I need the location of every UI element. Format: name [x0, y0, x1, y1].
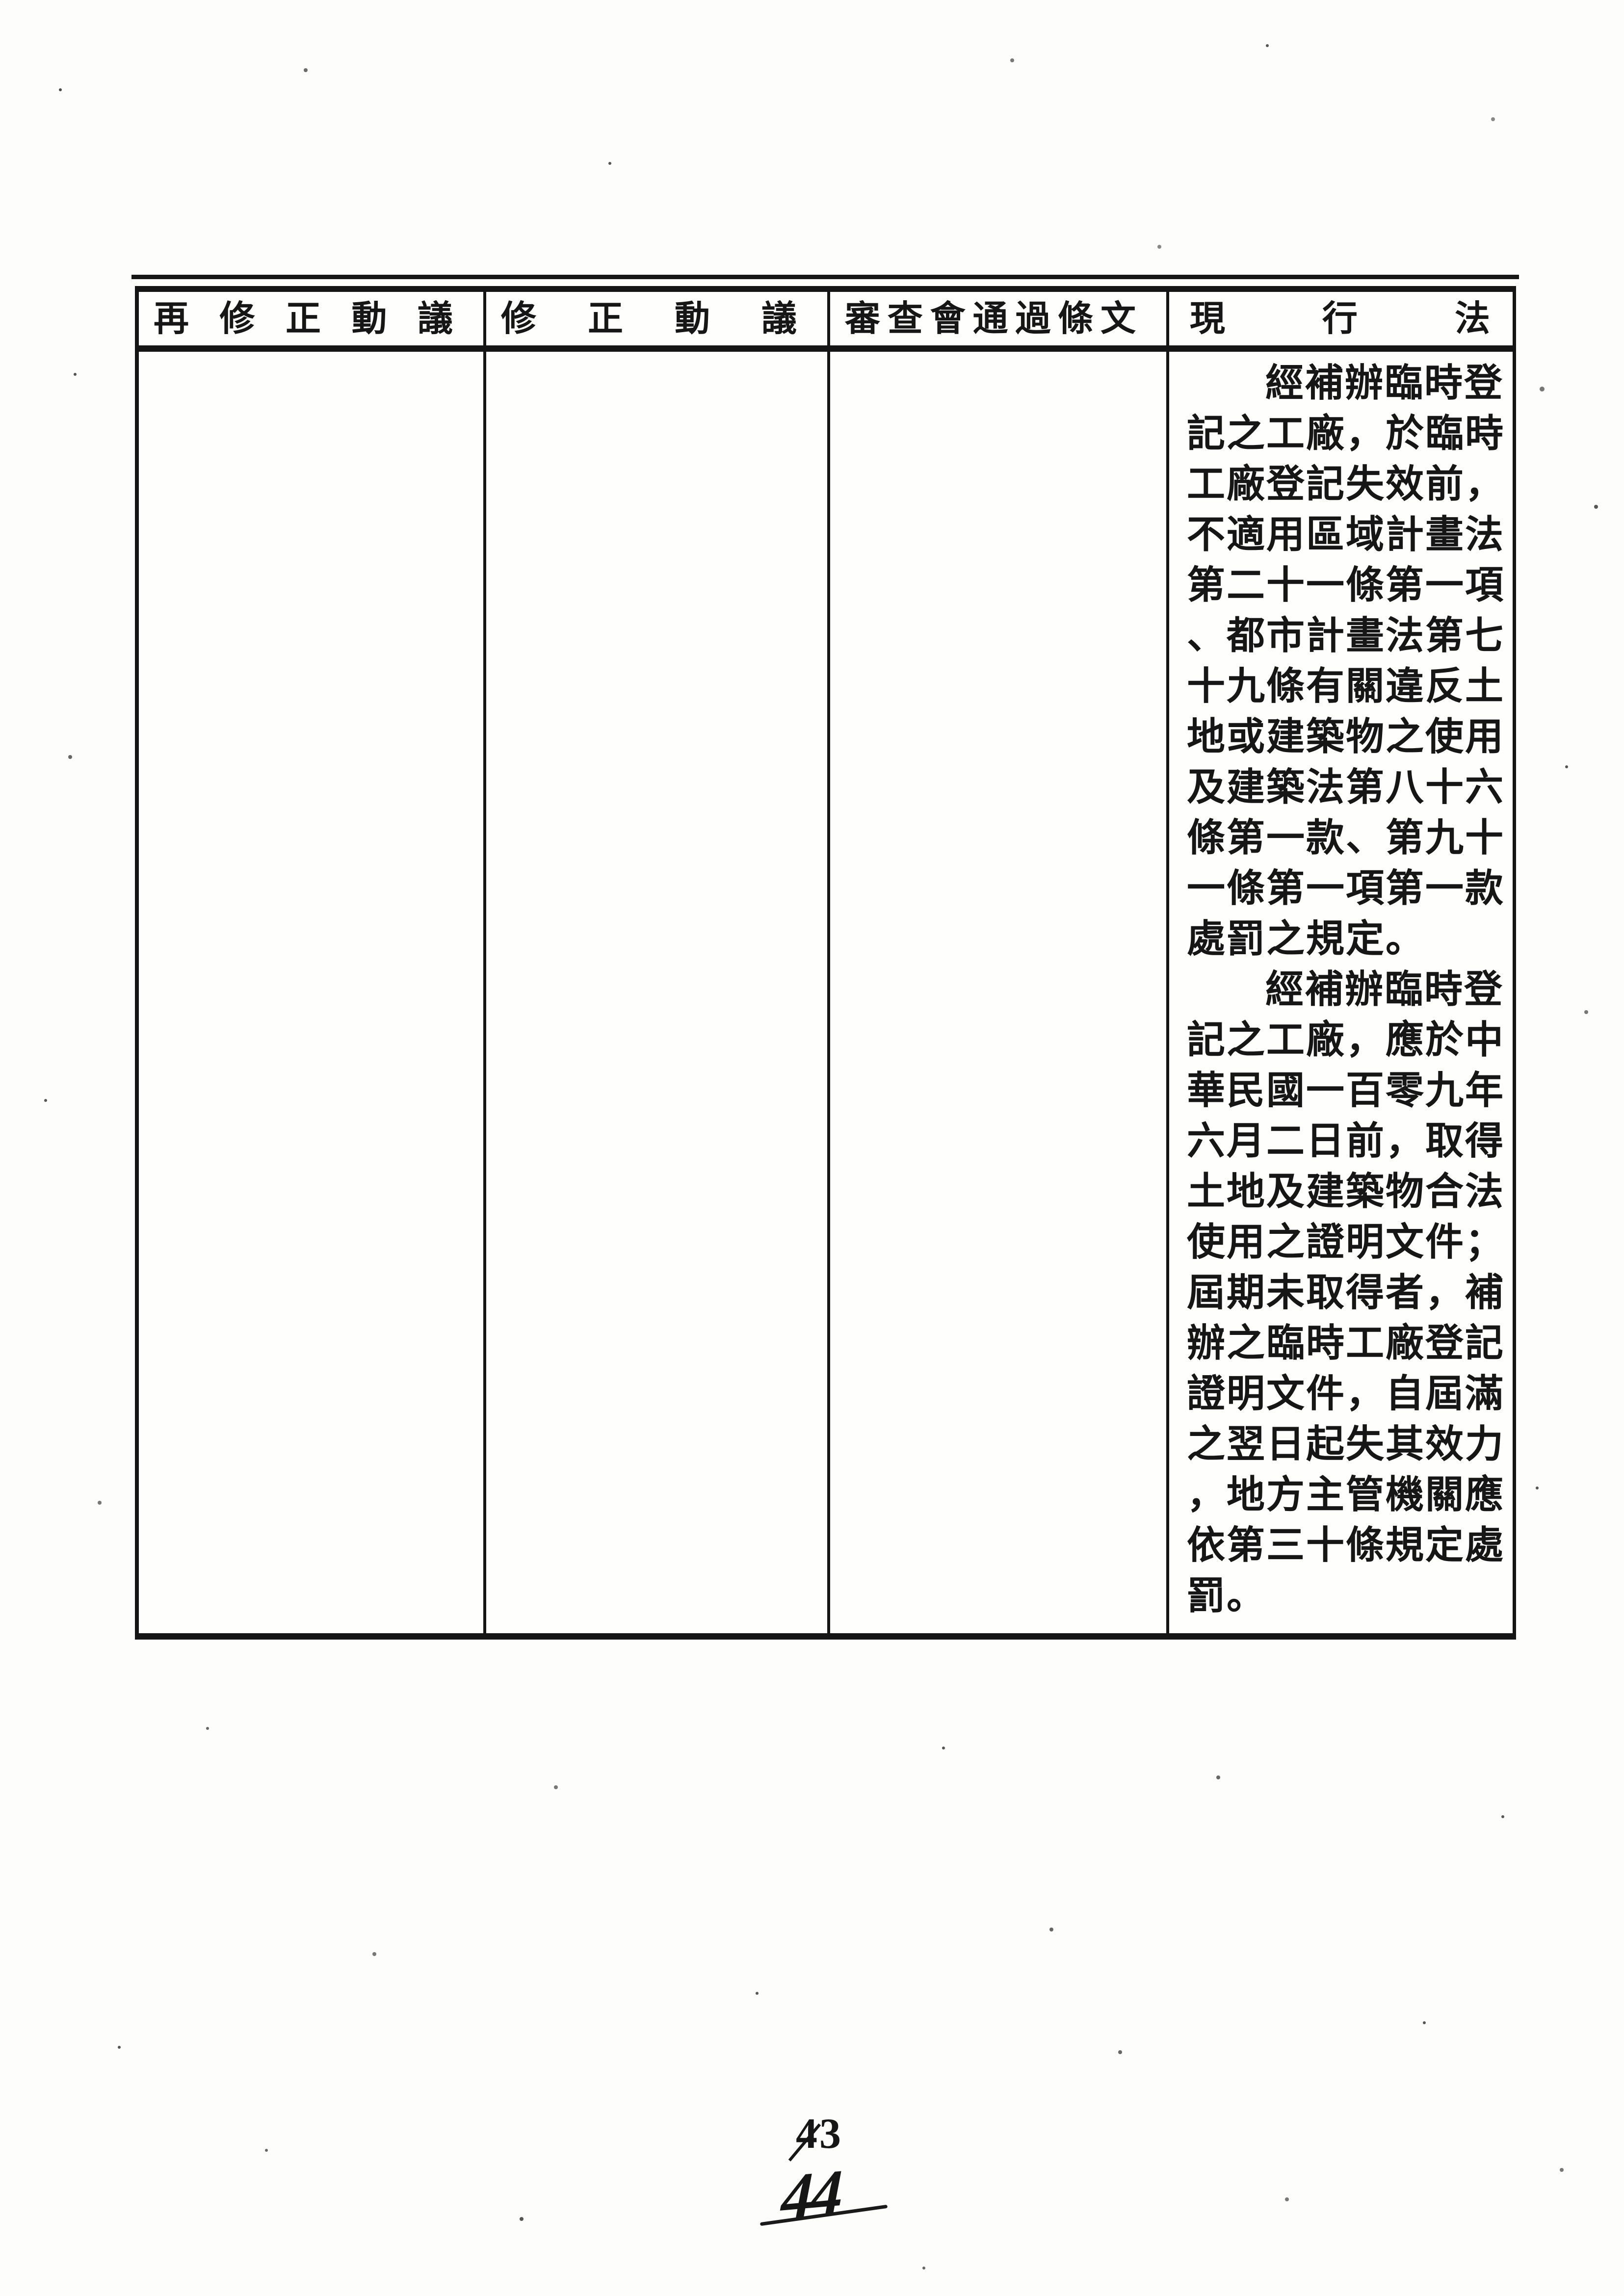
law-text-line: 屆期未取得者，補 [1187, 1267, 1505, 1318]
header-label-current-law: 現行法 [1169, 301, 1514, 337]
header-label-amendment-motion: 修正動議 [486, 301, 827, 337]
law-text-line: 處罰之規定。 [1187, 913, 1505, 964]
header-char: 正 [286, 301, 321, 337]
header-re-amendment-motion: 再修正動議 [139, 292, 486, 352]
law-text-line: 罰。 [1187, 1570, 1505, 1621]
law-text-line: 經補辦臨時登 [1187, 964, 1505, 1015]
header-amendment-motion: 修正動議 [486, 292, 830, 352]
header-label-re-amendment-motion: 再修正動議 [139, 301, 483, 337]
scan-noise [59, 88, 62, 91]
column-re-amendment-motion [139, 352, 486, 1633]
law-text-line: 十九條有關違反土 [1187, 661, 1505, 711]
law-comparison-table: 再修正動議 修正動議 審查會通過條文 現行法 經補辦臨時登記之工廠，於臨時工廠登… [135, 286, 1516, 1640]
header-committee-passed-text: 審查會通過條文 [830, 292, 1169, 352]
law-text-line: 記之工廠，於臨時 [1187, 408, 1505, 459]
table-top-rule [131, 275, 1519, 279]
scanned-page: 再修正動議 修正動議 審查會通過條文 現行法 經補辦臨時登記之工廠，於臨時工廠登… [0, 0, 1624, 2296]
column-amendment-motion [486, 352, 830, 1633]
law-text-line: 條第一款、第九十 [1187, 812, 1505, 863]
law-text-line: 經補辦臨時登 [1187, 358, 1505, 408]
law-text-line: 證明文件，自屆滿 [1187, 1368, 1505, 1419]
law-text-line: 依第三十條規定處 [1187, 1520, 1505, 1570]
header-char: 通 [972, 301, 1008, 337]
header-char: 法 [1455, 301, 1490, 337]
header-char: 審 [845, 301, 880, 337]
law-text-line: 土地及建築物合法 [1187, 1166, 1505, 1217]
header-char: 查 [888, 301, 923, 337]
law-text-line: 工廠登記失效前， [1187, 459, 1505, 509]
law-text-line: 使用之證明文件； [1187, 1217, 1505, 1267]
law-text-line: 第二十一條第一項 [1187, 560, 1505, 610]
header-char: 動 [675, 301, 710, 337]
header-char: 動 [351, 301, 387, 337]
header-label-committee-passed-text: 審查會通過條文 [830, 301, 1166, 337]
law-text-line: ，地方主管機關應 [1187, 1469, 1505, 1520]
header-char: 條 [1058, 301, 1093, 337]
header-char: 正 [588, 301, 623, 337]
header-current-law: 現行法 [1169, 292, 1514, 352]
header-char: 會 [930, 301, 966, 337]
law-text-line: 地或建築物之使用 [1187, 711, 1505, 762]
law-text-line: 及建築法第八十六 [1187, 762, 1505, 812]
printed-page-number: 43 [796, 2113, 843, 2156]
header-char: 修 [219, 301, 255, 337]
law-text-line: 華民國一百零九年 [1187, 1065, 1505, 1116]
law-text-line: 記之工廠，應於中 [1187, 1015, 1505, 1065]
header-char: 修 [501, 301, 536, 337]
header-char: 行 [1322, 301, 1358, 337]
law-text-line: 、都市計畫法第七 [1187, 610, 1505, 661]
header-char: 文 [1100, 301, 1136, 337]
law-text-line: 不適用區域計畫法 [1187, 509, 1505, 560]
header-char: 再 [154, 301, 189, 337]
header-char: 現 [1190, 301, 1225, 337]
header-char: 議 [418, 301, 453, 337]
law-text-line: 六月二日前，取得 [1187, 1116, 1505, 1166]
column-current-law: 經補辦臨時登記之工廠，於臨時工廠登記失效前，不適用區域計畫法第二十一條第一項、都… [1169, 352, 1514, 1633]
column-committee-passed-text [830, 352, 1169, 1633]
law-text-line: 之翌日起失其效力 [1187, 1419, 1505, 1469]
header-char: 過 [1015, 301, 1050, 337]
law-text-line: 一條第一項第一款 [1187, 863, 1505, 913]
law-text-line: 辦之臨時工廠登記 [1187, 1318, 1505, 1368]
header-char: 議 [761, 301, 797, 337]
